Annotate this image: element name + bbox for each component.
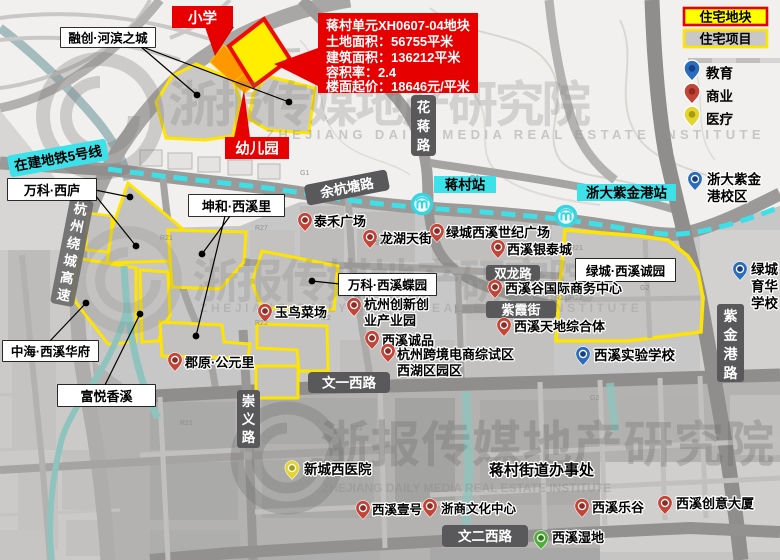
svg-text:R27: R27 [255, 225, 268, 232]
svg-text:医疗: 医疗 [706, 111, 734, 127]
svg-text:泰禾广场: 泰禾广场 [313, 214, 366, 229]
svg-text:新城西医院: 新城西医院 [304, 461, 372, 477]
svg-text:绿城育华学校: 绿城育华学校 [751, 261, 779, 311]
svg-text:西溪实验学校: 西溪实验学校 [594, 347, 675, 363]
svg-text:浙大紫金港站: 浙大紫金港站 [586, 185, 667, 201]
svg-text:绿城·西溪诚园: 绿城·西溪诚园 [586, 264, 665, 279]
svg-text:融创·河滨之城: 融创·河滨之城 [68, 31, 148, 46]
svg-text:G2: G2 [640, 285, 649, 292]
svg-text:ZHEJIANG DAILY MEDIA REAL ESTA: ZHEJIANG DAILY MEDIA REAL ESTATE INSTITU… [266, 127, 762, 142]
svg-text:西溪乐谷: 西溪乐谷 [592, 500, 645, 515]
svg-text:文一西路: 文一西路 [322, 375, 376, 391]
svg-text:西溪创意大厦: 西溪创意大厦 [676, 496, 755, 511]
svg-text:西溪湿地: 西溪湿地 [552, 530, 604, 545]
svg-text:住宅项目: 住宅项目 [699, 32, 751, 47]
svg-text:住宅地块: 住宅地块 [699, 10, 752, 25]
svg-text:R21: R21 [570, 245, 583, 252]
svg-text:R22: R22 [318, 315, 331, 322]
svg-text:ZHEJIANG DAILY MEDIA REAL ESTA: ZHEJIANG DAILY MEDIA REAL ESTATE INSTITU… [322, 481, 612, 495]
svg-text:G1: G1 [300, 170, 309, 177]
svg-text:R22: R22 [255, 320, 268, 327]
svg-text:花蒋路: 花蒋路 [417, 99, 431, 153]
svg-text:西溪谷国际商务中心: 西溪谷国际商务中心 [505, 281, 622, 296]
svg-text:崇义路: 崇义路 [242, 393, 256, 445]
svg-text:龙湖天街: 龙湖天街 [380, 231, 432, 246]
svg-text:蒋村站: 蒋村站 [445, 177, 486, 193]
svg-text:坤和·西溪里: 坤和·西溪里 [202, 199, 271, 214]
svg-text:文二西路: 文二西路 [458, 528, 512, 544]
svg-text:富悦香溪: 富悦香溪 [80, 389, 133, 404]
svg-text:蒋村街道办事处: 蒋村街道办事处 [489, 461, 595, 479]
svg-text:万科·西庐: 万科·西庐 [23, 183, 80, 198]
svg-text:建筑面积：136212平米: 建筑面积：136212平米 [326, 50, 461, 65]
svg-text:G1: G1 [470, 175, 479, 182]
svg-text:幼儿园: 幼儿园 [235, 140, 279, 158]
svg-text:教育: 教育 [706, 65, 733, 81]
svg-text:西溪银泰城: 西溪银泰城 [507, 242, 572, 257]
svg-text:商业: 商业 [706, 88, 733, 104]
svg-text:小学: 小学 [188, 9, 217, 27]
svg-text:西溪壹号: 西溪壹号 [372, 502, 422, 517]
svg-text:容积率：2.4: 容积率：2.4 [325, 65, 397, 80]
svg-text:R21: R21 [350, 425, 363, 432]
svg-text:郡原·公元里: 郡原·公元里 [184, 355, 254, 370]
svg-text:G2: G2 [590, 395, 599, 402]
svg-text:绿城西溪世纪广场: 绿城西溪世纪广场 [446, 225, 550, 240]
svg-text:R21: R21 [180, 420, 193, 427]
svg-text:万科·西溪蝶园: 万科·西溪蝶园 [347, 278, 427, 293]
svg-text:双龙路: 双龙路 [493, 266, 532, 281]
svg-text:土地面积：56755平米: 土地面积：56755平米 [326, 34, 454, 49]
svg-text:浙商文化中心: 浙商文化中心 [441, 501, 517, 516]
svg-text:西溪天地综合体: 西溪天地综合体 [514, 319, 606, 334]
svg-text:蒋村单元XH0607-04地块: 蒋村单元XH0607-04地块 [326, 18, 471, 33]
svg-text:R21: R21 [160, 235, 173, 242]
svg-text:中海·西溪华府: 中海·西溪华府 [11, 344, 91, 359]
svg-text:楼面起价：18646元/平米: 楼面起价：18646元/平米 [326, 79, 471, 94]
svg-text:R21/R22: R21/R22 [555, 295, 583, 302]
svg-text:R21: R21 [500, 425, 513, 432]
svg-text:紫霞街: 紫霞街 [501, 303, 540, 318]
svg-text:S41: S41 [375, 240, 388, 247]
